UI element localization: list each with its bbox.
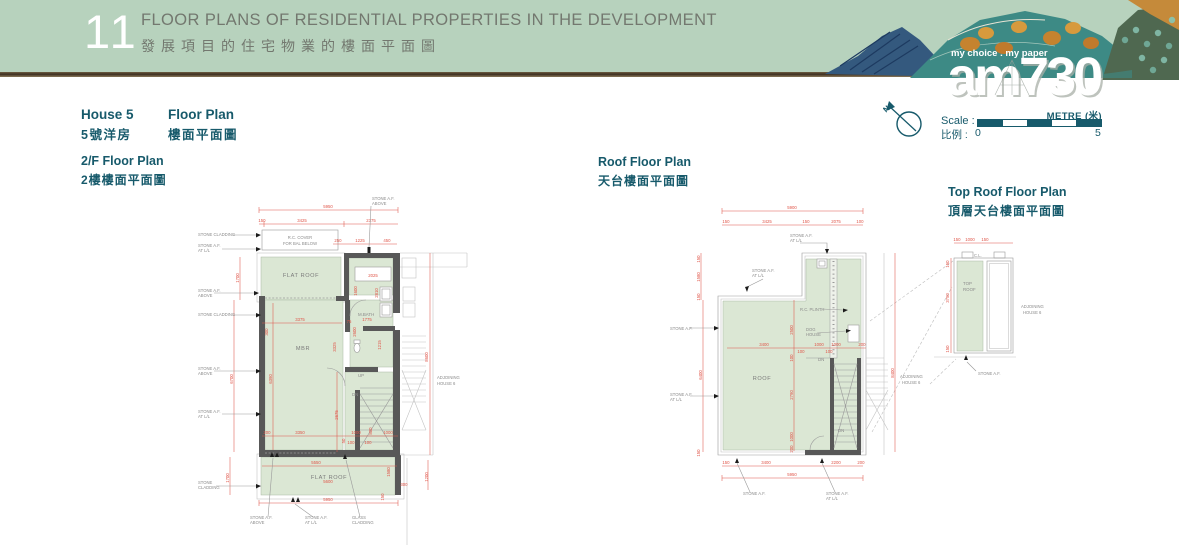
dim: 1700: [225, 473, 230, 483]
dim: 6400: [698, 370, 703, 380]
dim: 6390: [268, 374, 273, 384]
stair-dn: DN: [838, 428, 844, 433]
dim: 150: [696, 293, 701, 301]
brochure-page: 11 FLOOR PLANS OF RESIDENTIAL PROPERTIES…: [0, 0, 1179, 547]
room-mbr: MBR: [296, 346, 310, 352]
dim: 100: [364, 440, 372, 445]
dim: 3325: [332, 342, 337, 352]
dim: 1700: [235, 273, 240, 283]
dim: 1775: [362, 317, 372, 322]
adjoining-label: ADJOINING: [437, 375, 460, 380]
dim: 800: [368, 427, 373, 435]
dim: 100: [856, 219, 864, 224]
adjoining-label: HOUSE 6: [437, 381, 456, 386]
note: ABOVE: [372, 201, 387, 206]
dim: 2075: [831, 219, 841, 224]
rc-cover-label: R.C. COVER: [288, 235, 312, 240]
dim: 1000: [814, 342, 824, 347]
note: AT L/L: [790, 238, 803, 243]
plan-roof-drawing: 5900 150 3425 150 2075 100 150 1580 150 …: [670, 205, 953, 501]
dim: 5950: [323, 497, 333, 502]
plan-toproof-drawing: 150 1000 150 150 3750 150 C.L. TOP ROOF …: [930, 237, 1044, 384]
dim: 2600: [352, 327, 357, 337]
note: STONE CLADDING: [198, 232, 235, 237]
plan-2f-drawing: 5950 150 3425 2375 250 1225 450 1700 202…: [198, 196, 467, 545]
dim: 1200: [424, 472, 429, 482]
dim: 100: [347, 440, 355, 445]
dim: 150: [696, 449, 701, 457]
dim: 100: [825, 349, 833, 354]
dim: 150: [696, 255, 701, 263]
note: C.L.: [974, 253, 982, 258]
dim: 2200: [831, 460, 841, 465]
dim: 150: [802, 219, 810, 224]
stair-dn: DN: [818, 357, 824, 362]
note: STONE CLADDING: [198, 312, 235, 317]
dim: 150: [981, 237, 989, 242]
dim: 1000: [789, 432, 794, 442]
dim: 8600: [424, 352, 429, 362]
note: ABOVE: [198, 371, 213, 376]
dim: 8400: [890, 368, 895, 378]
adjoining-label: HOUSE 6: [902, 380, 921, 385]
adjoining-label: HOUSE 6: [1023, 310, 1042, 315]
dim: 1580: [696, 272, 701, 282]
dim: 250: [334, 238, 342, 243]
room-top-roof: TOP: [963, 281, 972, 286]
dim: 2675: [334, 410, 339, 420]
dim: 150: [258, 218, 266, 223]
adjoining-label: ADJOINING: [1021, 304, 1044, 309]
room-flat-roof: FLAT ROOF: [283, 273, 319, 279]
dim: 1600: [353, 286, 358, 296]
dim: 3400: [761, 460, 771, 465]
adjoining-label: ADJOINING: [900, 374, 923, 379]
dim: 1000: [831, 342, 841, 347]
dim: 150: [722, 219, 730, 224]
dim: 50: [341, 438, 346, 443]
note: ABOVE: [198, 293, 213, 298]
dim: 2375: [366, 218, 376, 223]
dim: 100: [797, 349, 805, 354]
room-top-roof: ROOF: [963, 287, 976, 292]
dim: 150: [945, 345, 950, 353]
dim: 3400: [759, 342, 769, 347]
dim: 1000: [351, 430, 361, 435]
dim: 3425: [297, 218, 307, 223]
note: STONE A.F.: [670, 326, 693, 331]
dim: 150: [722, 460, 730, 465]
dim: 150: [953, 237, 961, 242]
floor-plan-drawings: 5950 150 3425 2375 250 1225 450 1700 202…: [0, 0, 1179, 547]
dim: 5950: [787, 472, 797, 477]
dim: 2025: [368, 273, 378, 278]
note: ABOVE: [250, 520, 265, 525]
note: AT L/L: [198, 414, 211, 419]
dim: 150: [380, 493, 385, 501]
note: AT L/L: [305, 520, 318, 525]
note: STONE A.F.: [743, 491, 766, 496]
rc-cover-label: FOR BAL BELOW: [283, 241, 317, 246]
note: STONE A.F.: [978, 371, 1001, 376]
room-flat-roof: FLAT ROOF: [311, 475, 347, 481]
dim: 300: [264, 328, 269, 336]
note: R.C. PLINTH: [800, 307, 824, 312]
dim: 1000: [965, 237, 975, 242]
dim: 1215: [377, 340, 382, 350]
dim: 100: [789, 354, 794, 362]
dim: 5900: [787, 205, 797, 210]
dim: 2810: [374, 288, 379, 298]
dim: 5550: [311, 460, 321, 465]
dim: 200: [857, 460, 865, 465]
dim: 3375: [295, 317, 305, 322]
dim: 3425: [762, 219, 772, 224]
dim: 1225: [355, 238, 365, 243]
note: AT L/L: [826, 496, 839, 501]
dim: 200: [858, 342, 866, 347]
dim: 2790: [789, 390, 794, 400]
room-roof: ROOF: [753, 376, 772, 382]
note: CLADDING: [198, 485, 220, 490]
dim: 3750: [945, 293, 950, 303]
dim: 2500: [789, 325, 794, 335]
dim: 200: [789, 445, 794, 453]
dim: 75: [347, 319, 352, 324]
note: AT L/L: [198, 248, 211, 253]
note: CLADDING: [352, 520, 374, 525]
dim: 1000: [383, 430, 393, 435]
dim: 5950: [323, 204, 333, 209]
dim: 1580: [386, 467, 391, 477]
note: AT L/L: [752, 273, 765, 278]
dim: 200: [263, 430, 271, 435]
dim: 3350: [295, 430, 305, 435]
dim: 450: [383, 238, 391, 243]
room-mbath: M.BATH: [358, 312, 374, 317]
dim: 150: [945, 260, 950, 268]
dim: 300: [400, 482, 408, 487]
note: AT L/L: [670, 397, 683, 402]
stair-dn: DN: [352, 392, 358, 397]
stair-up: UP: [358, 373, 364, 378]
dim: 6700: [229, 374, 234, 384]
